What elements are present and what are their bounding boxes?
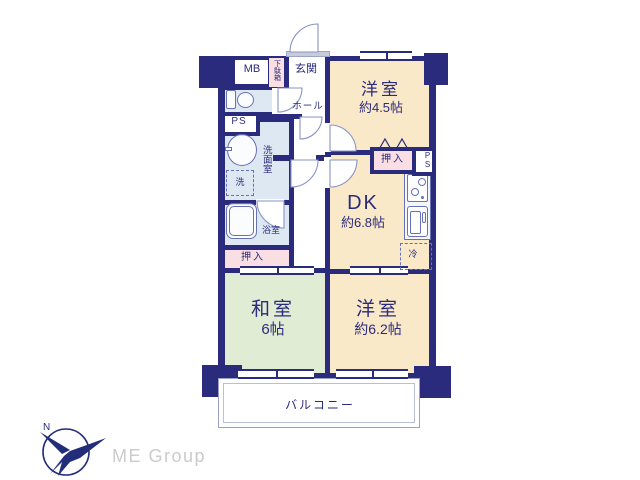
me-group-logo: N <box>36 418 116 480</box>
pipe-space-right-label: PS <box>423 151 431 169</box>
closet-left-label: 押入 <box>241 253 265 264</box>
entrance-label: 玄関 <box>295 64 317 76</box>
western1-door-arc <box>330 125 356 151</box>
dk-door-arc <box>330 160 357 187</box>
dk-size: 約6.8帖 <box>341 216 385 230</box>
floor-plan: MB 下駄箱 玄関 ホール 洋室 約4.5帖 PS 洗面室 洗 浴室 押入 押入… <box>0 0 640 480</box>
dk-label: DK <box>347 193 379 214</box>
logo-text: ME Group <box>112 446 206 467</box>
japanese-room-label: 和室 <box>251 300 295 320</box>
bath-door-arc <box>257 201 284 228</box>
washer-space-label: 洗 <box>235 178 244 187</box>
closet-right-label: 押入 <box>381 155 405 166</box>
pipe-space-left-label: PS <box>231 117 246 128</box>
bathroom-label: 浴室 <box>262 226 280 235</box>
western-room-2-label: 洋室 <box>356 300 400 320</box>
corridor-door-arc <box>291 160 318 187</box>
refrigerator-space-label: 冷 <box>408 250 417 259</box>
entrance-door-arc <box>290 24 318 52</box>
hall-door-arc <box>300 117 322 139</box>
balcony-label: バルコニー <box>285 399 355 412</box>
hall-label: ホール <box>292 102 324 112</box>
washroom-label: 洗面室 <box>261 145 271 174</box>
shoe-cabinet-label: 下駄箱 <box>274 60 281 81</box>
western-room-1-label: 洋室 <box>361 81 401 99</box>
meter-box-label: MB <box>244 64 261 76</box>
logo-n-mark: N <box>43 422 50 433</box>
western-room-1-size: 約4.5帖 <box>359 101 403 115</box>
western-room-2-size: 約6.2帖 <box>354 322 401 337</box>
japanese-room-size: 6帖 <box>261 322 284 338</box>
